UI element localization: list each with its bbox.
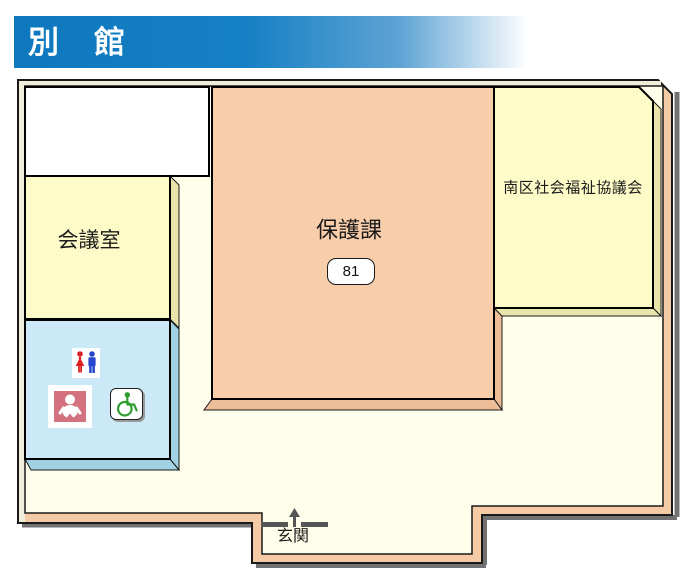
floorplan-drawing (0, 0, 700, 578)
room-council-sideface (653, 101, 661, 316)
entrance-label: 玄関 (277, 528, 309, 546)
room-restroom-sideface (170, 320, 179, 470)
room-restroom (25, 320, 170, 459)
room-hogoka-sideface (494, 308, 502, 410)
room-council-bottomface (494, 308, 661, 316)
wheelchair-accessible-icon (110, 388, 143, 420)
male-female-restroom-icon (72, 348, 100, 378)
baby-care-room-inner (54, 391, 86, 422)
room-council (494, 87, 653, 308)
baby-care-room-icon (48, 385, 92, 428)
extension-badge: 81 (327, 258, 375, 285)
room-restroom-bottomface (25, 459, 179, 470)
room-unlabeled (25, 87, 209, 176)
room-meeting-sideface (170, 176, 179, 328)
room-council-label: 南区社会福祉協議会 (503, 179, 643, 196)
room-hogoka-bottomface (204, 399, 502, 410)
room-hogoka (212, 87, 494, 399)
room-meeting-label: 会議室 (58, 229, 121, 253)
room-hogoka-label: 保護課 (316, 217, 382, 242)
floor-map: 別 館 (0, 0, 700, 578)
